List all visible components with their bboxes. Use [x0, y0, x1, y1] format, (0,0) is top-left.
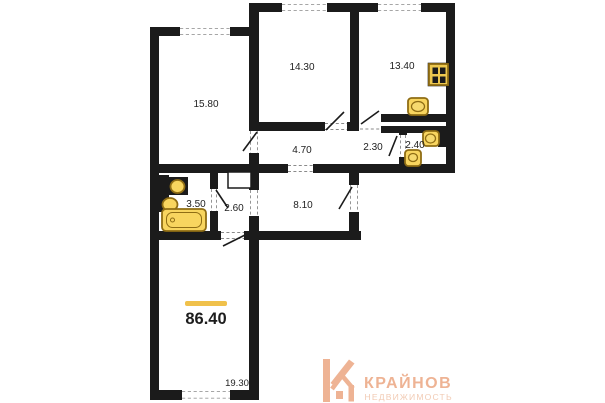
- door: [360, 111, 380, 129]
- room-area-label: 2.30: [363, 142, 383, 153]
- room-area-label: 14.30: [289, 62, 314, 73]
- opening: [288, 164, 313, 173]
- logo: КРАЙНОВ НЕДВИЖИМОСТЬ: [323, 359, 453, 402]
- wall-segment: [150, 27, 159, 400]
- room-labels: 15.80 14.30 13.40 4.70 2.30 2.40 3.50 2.…: [185, 61, 425, 389]
- toilet-icon: [405, 150, 421, 166]
- sink-icon: [408, 98, 428, 115]
- room-area-label: 15.80: [193, 99, 218, 110]
- window: [180, 27, 230, 36]
- total-area-accent-bar: [185, 301, 227, 306]
- wall-segment: [150, 231, 361, 240]
- door: [325, 112, 347, 131]
- wall-segment: [446, 3, 455, 173]
- room-area-label: 3.50: [186, 199, 206, 210]
- room-area-label: 19.30: [225, 378, 249, 389]
- door: [243, 131, 259, 153]
- wall-segment: [159, 164, 361, 173]
- stove-icon: [428, 63, 449, 86]
- sink-icon: [167, 177, 188, 195]
- room-area-label: 2.60: [224, 203, 244, 214]
- room-area-label: 4.70: [292, 145, 312, 156]
- window: [182, 390, 230, 400]
- window: [378, 3, 421, 12]
- wall-segment: [349, 164, 455, 173]
- room-area-label: 13.40: [389, 61, 414, 72]
- door: [221, 231, 245, 246]
- floor-plan: 15.80 14.30 13.40 4.70 2.30 2.40 3.50 2.…: [0, 0, 605, 403]
- wall-segment: [350, 12, 359, 131]
- entrance-door: [339, 185, 359, 212]
- total-area-label: 86.40: [185, 310, 226, 328]
- opening: [249, 190, 259, 216]
- room-area-label: 8.10: [293, 200, 313, 211]
- logo-title: КРАЙНОВ: [364, 373, 452, 392]
- logo-subtitle: НЕДВИЖИМОСТЬ: [365, 392, 453, 402]
- logo-house-k-icon: [323, 359, 355, 402]
- floor-plan-page: 15.80 14.30 13.40 4.70 2.30 2.40 3.50 2.…: [0, 0, 605, 403]
- sink-icon: [423, 131, 446, 146]
- wall-segment: [249, 3, 455, 12]
- niche: [228, 172, 251, 188]
- window: [282, 3, 327, 12]
- bathtub-icon: [162, 209, 206, 231]
- room-area-label: 2.40: [405, 140, 425, 151]
